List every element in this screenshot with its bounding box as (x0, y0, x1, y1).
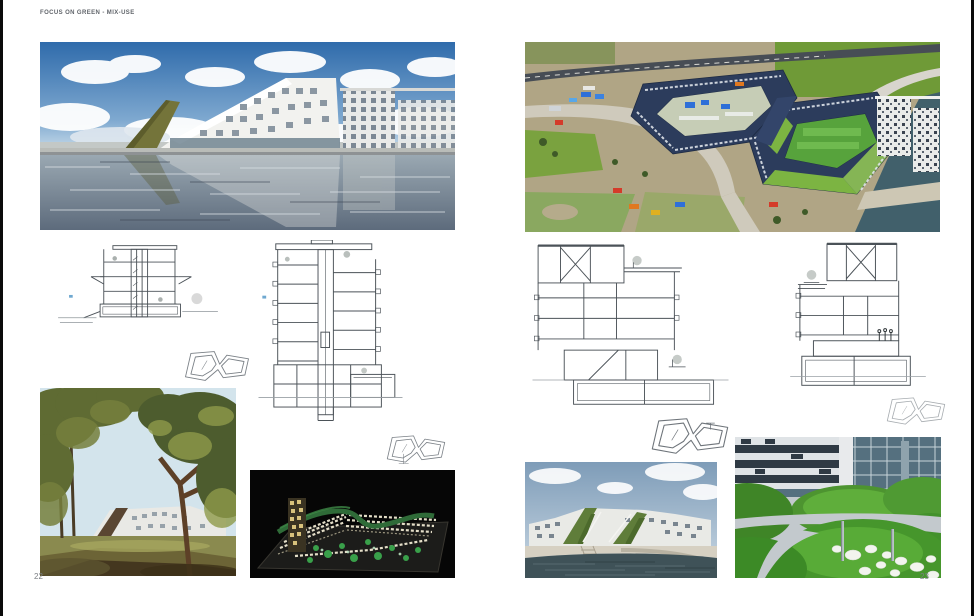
floor-plan-diagram-3 (648, 414, 732, 458)
mounds-photo-graphic (735, 437, 941, 578)
model-photo-graphic (250, 470, 455, 578)
floor-plan-1-graphic (180, 348, 254, 384)
aerial-photo-graphic (525, 42, 940, 232)
floor-plan-2-graphic (384, 430, 448, 468)
photo-night-model (250, 470, 455, 578)
floor-plan-4-graphic (884, 393, 948, 429)
page-number-right: 23 (920, 572, 929, 581)
section-a-graphic (58, 242, 218, 347)
floor-plan-diagram-1 (180, 348, 254, 384)
scan-edge-left (0, 0, 3, 616)
section-d-graphic (788, 240, 928, 395)
photo-aerial-construction (525, 42, 940, 232)
section-b-graphic (258, 240, 403, 432)
photo-grass-mounds (735, 437, 941, 578)
photo-meadow-trees-8house (40, 388, 236, 576)
section-c-graphic (528, 240, 733, 408)
photo-quayside-8house (525, 462, 717, 578)
section-drawing-a (58, 242, 218, 347)
section-drawing-c (528, 240, 733, 408)
photo-waterfront-8house (40, 42, 455, 230)
waterfront-photo-graphic (40, 42, 455, 230)
floor-plan-diagram-4 (884, 393, 948, 429)
section-drawing-d (788, 240, 928, 395)
page-number-left: 22 (34, 572, 43, 581)
floor-plan-3-graphic (648, 414, 732, 458)
running-header: FOCUS ON GREEN - MIX-USE (40, 10, 135, 16)
section-drawing-b (258, 240, 403, 432)
floor-plan-diagram-2 (384, 430, 448, 468)
quayside-photo-graphic (525, 462, 717, 578)
trees-photo-graphic (40, 388, 236, 576)
